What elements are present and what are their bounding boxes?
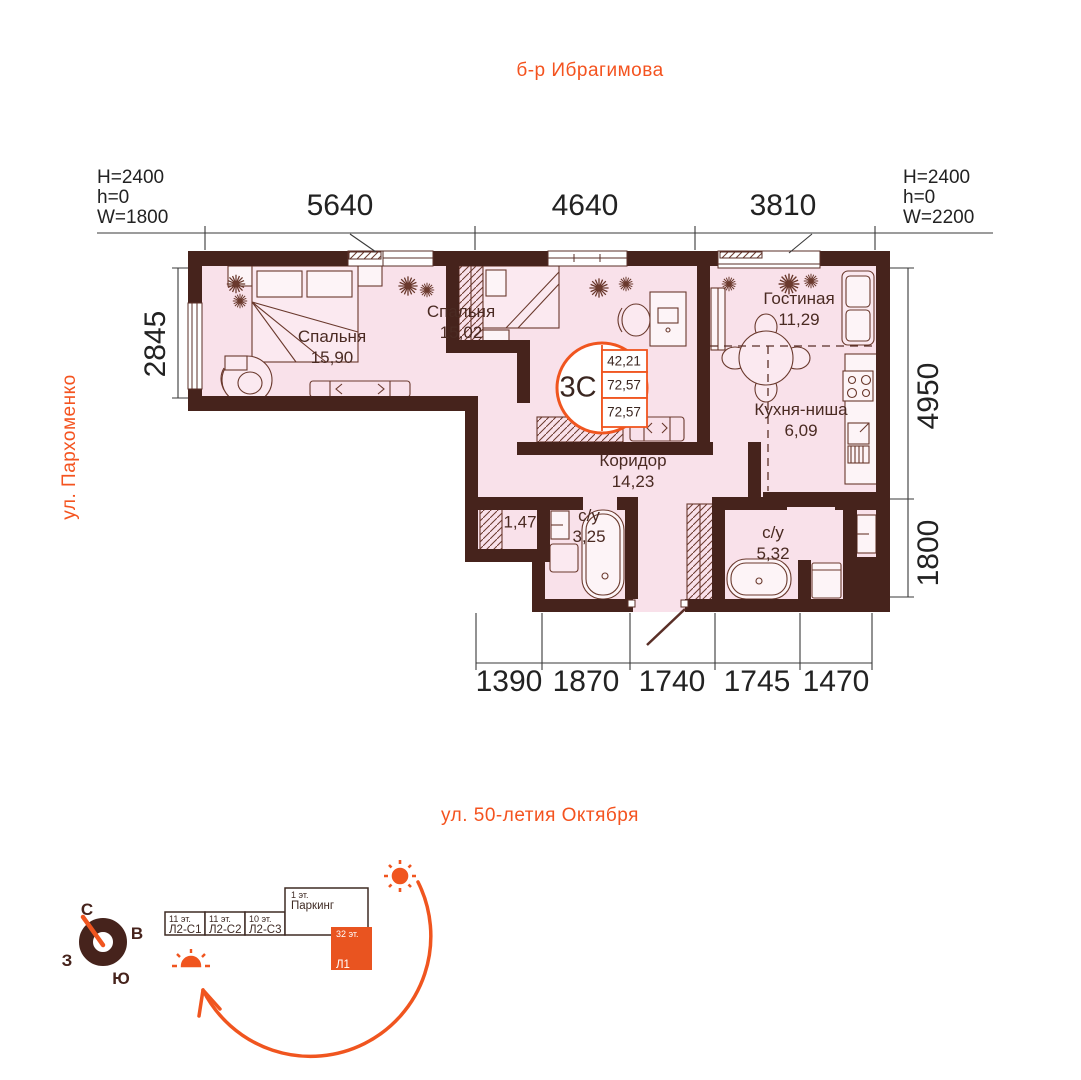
dim-left: 2845	[139, 311, 173, 378]
sofa-icon	[842, 271, 874, 345]
room-area: 6,09	[754, 420, 847, 441]
room-label-living: Гостиная 11,29	[763, 288, 834, 330]
room-area: 1,47	[503, 512, 536, 533]
building-block-2: 11 эт. Л2-С2	[209, 914, 241, 936]
badge-area-value: 72,57	[607, 378, 641, 393]
dim-bottom: 1870	[553, 665, 620, 699]
dim-top: 5640	[307, 189, 374, 223]
building-block-3: 10 эт. Л2-С3	[249, 914, 281, 936]
street-label-top: б-р Ибрагимова	[516, 60, 663, 82]
room-name: с/у	[572, 505, 605, 526]
spec-line: h=0	[97, 188, 168, 208]
room-name: Гостиная	[763, 288, 834, 309]
shelving-icon	[480, 509, 502, 553]
dim-top: 4640	[552, 189, 619, 223]
room-area: 3,25	[572, 526, 605, 547]
building-name: Паркинг	[291, 900, 334, 912]
compass-south: Ю	[112, 969, 130, 989]
apartment-type-badge: 3С	[559, 372, 596, 405]
room-area: 15,02	[427, 322, 495, 343]
room-name: Спальня	[427, 301, 495, 322]
compass-west: З	[62, 951, 73, 971]
building-floors: 11 эт.	[209, 914, 241, 924]
compass-north: С	[81, 900, 93, 920]
room-name: с/у	[756, 522, 789, 543]
building-tower-highlighted: 32 эт. Л1	[336, 929, 359, 971]
compass-east: В	[131, 924, 143, 944]
dim-bottom: 1740	[639, 665, 706, 699]
room-area: 15,90	[298, 347, 366, 368]
building-floors: 11 эт.	[169, 914, 201, 924]
sun-icon	[384, 860, 416, 892]
building-name: Л1	[336, 959, 350, 971]
badge-area-value: 72,57	[607, 405, 641, 420]
room-area: 14,23	[599, 471, 666, 492]
dim-top: 3810	[750, 189, 817, 223]
washer-icon	[812, 563, 841, 598]
spec-line: H=2400	[903, 168, 974, 188]
room-area: 5,32	[756, 543, 789, 564]
room-label-bedroom1: Спальня 15,90	[298, 326, 366, 368]
room-name: Кухня-ниша	[754, 399, 847, 420]
building-parking: 1 эт. Паркинг	[291, 890, 334, 912]
sunset-icon	[172, 949, 210, 966]
room-label-bedroom2: Спальня 15,02	[427, 301, 495, 343]
spec-line: W=2200	[903, 208, 974, 228]
spec-right: H=2400 h=0 W=2200	[903, 168, 974, 228]
entrance-door-leaf	[647, 609, 685, 645]
dim-bottom: 1390	[476, 665, 543, 699]
badge-area-value: 42,21	[607, 354, 641, 369]
bathtub-icon	[727, 559, 791, 599]
room-name: Коридор	[599, 450, 666, 471]
floorplan-page: б-р Ибрагимова ул. Пархоменко ул. 50-лет…	[0, 0, 1081, 1080]
dim-right: 1800	[912, 520, 946, 587]
cabinet-icon	[550, 544, 578, 572]
compass-icon	[83, 917, 120, 959]
building-floors: 1 эт.	[291, 890, 334, 900]
room-label-bath2: с/у 5,32	[756, 522, 789, 564]
room-name: Спальня	[298, 326, 366, 347]
dim-right: 4950	[912, 363, 946, 430]
building-floors: 10 эт.	[249, 914, 281, 924]
room-label-closet: 1,47	[503, 512, 536, 533]
dim-bottom: 1470	[803, 665, 870, 699]
room-label-kitchen: Кухня-ниша 6,09	[754, 399, 847, 441]
building-name: Л2-С1	[169, 924, 201, 936]
room-label-bath1: с/у 3,25	[572, 505, 605, 547]
dim-bottom: 1745	[724, 665, 791, 699]
room-label-corridor: Коридор 14,23	[599, 450, 666, 492]
street-label-left: ул. Пархоменко	[59, 374, 81, 519]
room-area: 11,29	[763, 309, 834, 330]
kitchen-counter-icon	[843, 354, 877, 484]
building-floors: 32 эт.	[336, 929, 359, 939]
spec-line: W=1800	[97, 208, 168, 228]
spec-line: H=2400	[97, 168, 168, 188]
spec-line: h=0	[903, 188, 974, 208]
street-label-bottom: ул. 50-летия Октября	[441, 805, 639, 827]
building-block-1: 11 эт. Л2-С1	[169, 914, 201, 936]
building-name: Л2-С3	[249, 924, 281, 936]
building-name: Л2-С2	[209, 924, 241, 936]
spec-left: H=2400 h=0 W=1800	[97, 168, 168, 228]
